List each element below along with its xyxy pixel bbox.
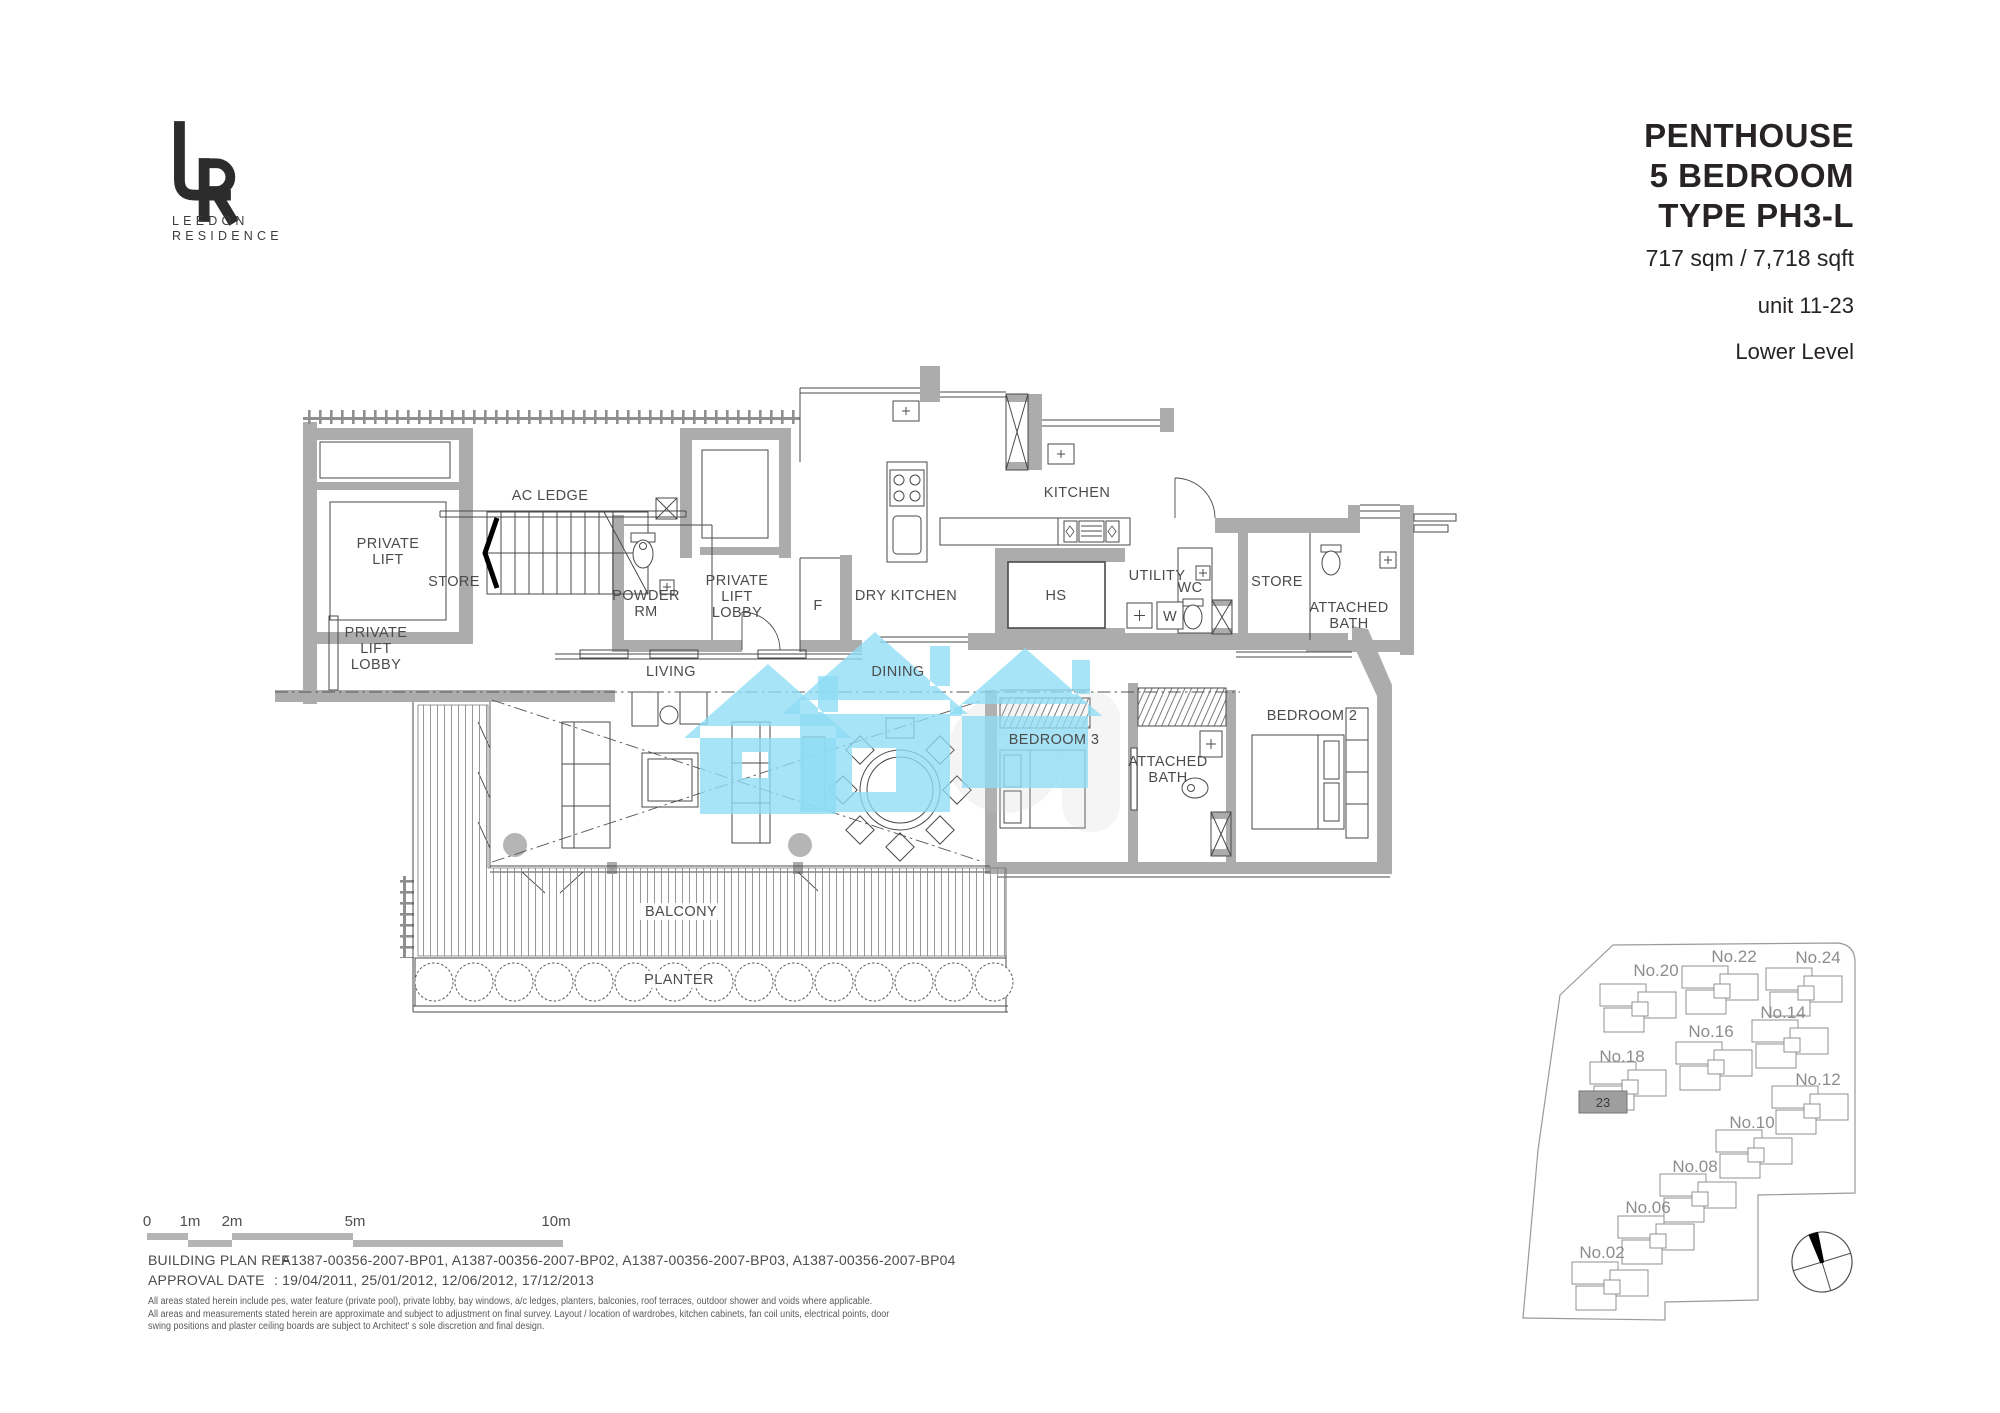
sitemap-building-label: No.24: [1795, 948, 1840, 967]
room-label-living: LIVING: [646, 664, 696, 680]
disclaimer-line-3: swing positions and plaster ceiling boar…: [148, 1321, 1273, 1334]
sitemap-building: No.16: [1676, 1022, 1752, 1090]
room-label-f-closet: F: [813, 598, 822, 614]
scalebar-tick-1m: 1m: [180, 1213, 201, 1230]
room-label-ac-ledge: AC LEDGE: [512, 488, 589, 504]
approval-date-value: : 19/04/2011, 25/01/2012, 12/06/2012, 17…: [274, 1272, 594, 1288]
brand-name-line1: LEEDON: [172, 214, 283, 229]
sitemap-building: No.20: [1600, 961, 1679, 1032]
scalebar-tick-5m: 5m: [345, 1213, 366, 1230]
room-label-bedroom-3: BEDROOM 3: [1009, 732, 1100, 748]
plan-footer: BUILDING PLAN REF: A1387-00356-2007-BP01…: [148, 1250, 1398, 1334]
sitemap-building: No.12: [1772, 1070, 1848, 1134]
unit-area: 717 sqm / 7,718 sqft: [1644, 245, 1854, 272]
sitemap-building-label: No.12: [1795, 1070, 1840, 1089]
room-label-attached-bath-top: ATTACHEDBATH: [1309, 600, 1388, 632]
sitemap-building-label: No.10: [1729, 1113, 1774, 1132]
brand-name: LEEDON RESIDENCE: [172, 214, 283, 244]
room-label-store-2: STORE: [1251, 574, 1303, 590]
scalebar-segment: [353, 1240, 563, 1247]
pot-plant-right: [788, 833, 812, 857]
room-label-private-lift-lobby-upper: PRIVATELIFTLOBBY: [706, 573, 769, 621]
sitemap-building-label: No.16: [1688, 1022, 1733, 1041]
disclaimer-line-2: All areas and measurements stated herein…: [148, 1309, 1273, 1322]
scalebar-tick-10m: 10m: [541, 1213, 570, 1230]
room-label-kitchen: KITCHEN: [1044, 485, 1110, 501]
sitemap-building-label: No.18: [1599, 1047, 1644, 1066]
sitemap-building-label: No.20: [1633, 961, 1678, 980]
scalebar-tick-2m: 2m: [222, 1213, 243, 1230]
title-line-2: 5 BEDROOM: [1644, 156, 1854, 196]
approval-date-label: APPROVAL DATE: [148, 1270, 274, 1290]
room-label-private-lift-lobby-lower: PRIVATELIFTLOBBY: [345, 625, 408, 673]
sitemap-buildings: No.20No.22No.24No.16No.14No.18No.12No.10…: [1572, 947, 1848, 1310]
scalebar-segment: [188, 1240, 232, 1247]
room-label-private-lift: PRIVATELIFT: [357, 536, 420, 568]
sitemap-building-label: No.14: [1760, 1003, 1805, 1022]
pot-plant-left: [503, 833, 527, 857]
room-label-hs: HS: [1046, 588, 1067, 604]
unit-level: Lower Level: [1644, 339, 1854, 365]
unit-title-block: PENTHOUSE 5 BEDROOM TYPE PH3-L 717 sqm /…: [1644, 116, 1854, 365]
room-label-planter: PLANTER: [644, 972, 714, 988]
scale-bar: 01m2m5m10m: [143, 1213, 571, 1247]
sitemap: No.20No.22No.24No.16No.14No.18No.12No.10…: [1523, 943, 1859, 1320]
north-compass-icon: [1785, 1225, 1860, 1300]
scalebar-tick-0: 0: [143, 1213, 151, 1230]
scalebar-segment: [147, 1233, 188, 1240]
room-label-w-washer: W: [1163, 609, 1177, 625]
brand-logo: LEEDON RESIDENCE: [148, 118, 298, 231]
building-plan-ref-value: : A1387-00356-2007-BP01, A1387-00356-200…: [274, 1252, 956, 1268]
approval-date-row: APPROVAL DATE: 19/04/2011, 25/01/2012, 1…: [148, 1270, 1398, 1290]
sitemap-building-label: No.06: [1625, 1198, 1670, 1217]
sitemap-building-label: No.22: [1711, 947, 1756, 966]
title-line-3: TYPE PH3-L: [1644, 196, 1854, 236]
room-label-dining: DINING: [871, 664, 924, 680]
building-plan-ref-row: BUILDING PLAN REF: A1387-00356-2007-BP01…: [148, 1250, 1398, 1270]
sitemap-building-label: No.02: [1579, 1243, 1624, 1262]
room-label-store-1: STORE: [428, 574, 480, 590]
disclaimer-line-1: All areas stated herein include pes, wat…: [148, 1296, 1273, 1309]
sitemap-unit-highlighted: 23: [1579, 1091, 1627, 1113]
room-label-dry-kitchen: DRY KITCHEN: [855, 588, 957, 604]
room-label-wc: WC: [1178, 580, 1203, 596]
scalebar-segment: [232, 1233, 353, 1240]
sitemap-building: No.22: [1682, 947, 1758, 1014]
sitemap-unit-number: 23: [1596, 1095, 1610, 1110]
title-line-1: PENTHOUSE: [1644, 116, 1854, 156]
sitemap-building-label: No.08: [1672, 1157, 1717, 1176]
sitemap-building: No.14: [1752, 1003, 1828, 1068]
disclaimer-text: All areas stated herein include pes, wat…: [148, 1296, 1273, 1334]
building-plan-ref-label: BUILDING PLAN REF: [148, 1250, 274, 1270]
brochure-page: { "brand": { "monogram_lines": ["LEEDON"…: [0, 0, 2000, 1413]
ac-ledge-comb-top: [303, 410, 800, 424]
unit-number: unit 11-23: [1644, 293, 1854, 319]
room-label-bedroom-2: BEDROOM 2: [1267, 708, 1358, 724]
lr-monogram-icon: [148, 118, 252, 226]
balcony-comb-left: [400, 876, 414, 958]
room-label-balcony: BALCONY: [645, 904, 717, 920]
brand-name-line2: RESIDENCE: [172, 229, 283, 244]
